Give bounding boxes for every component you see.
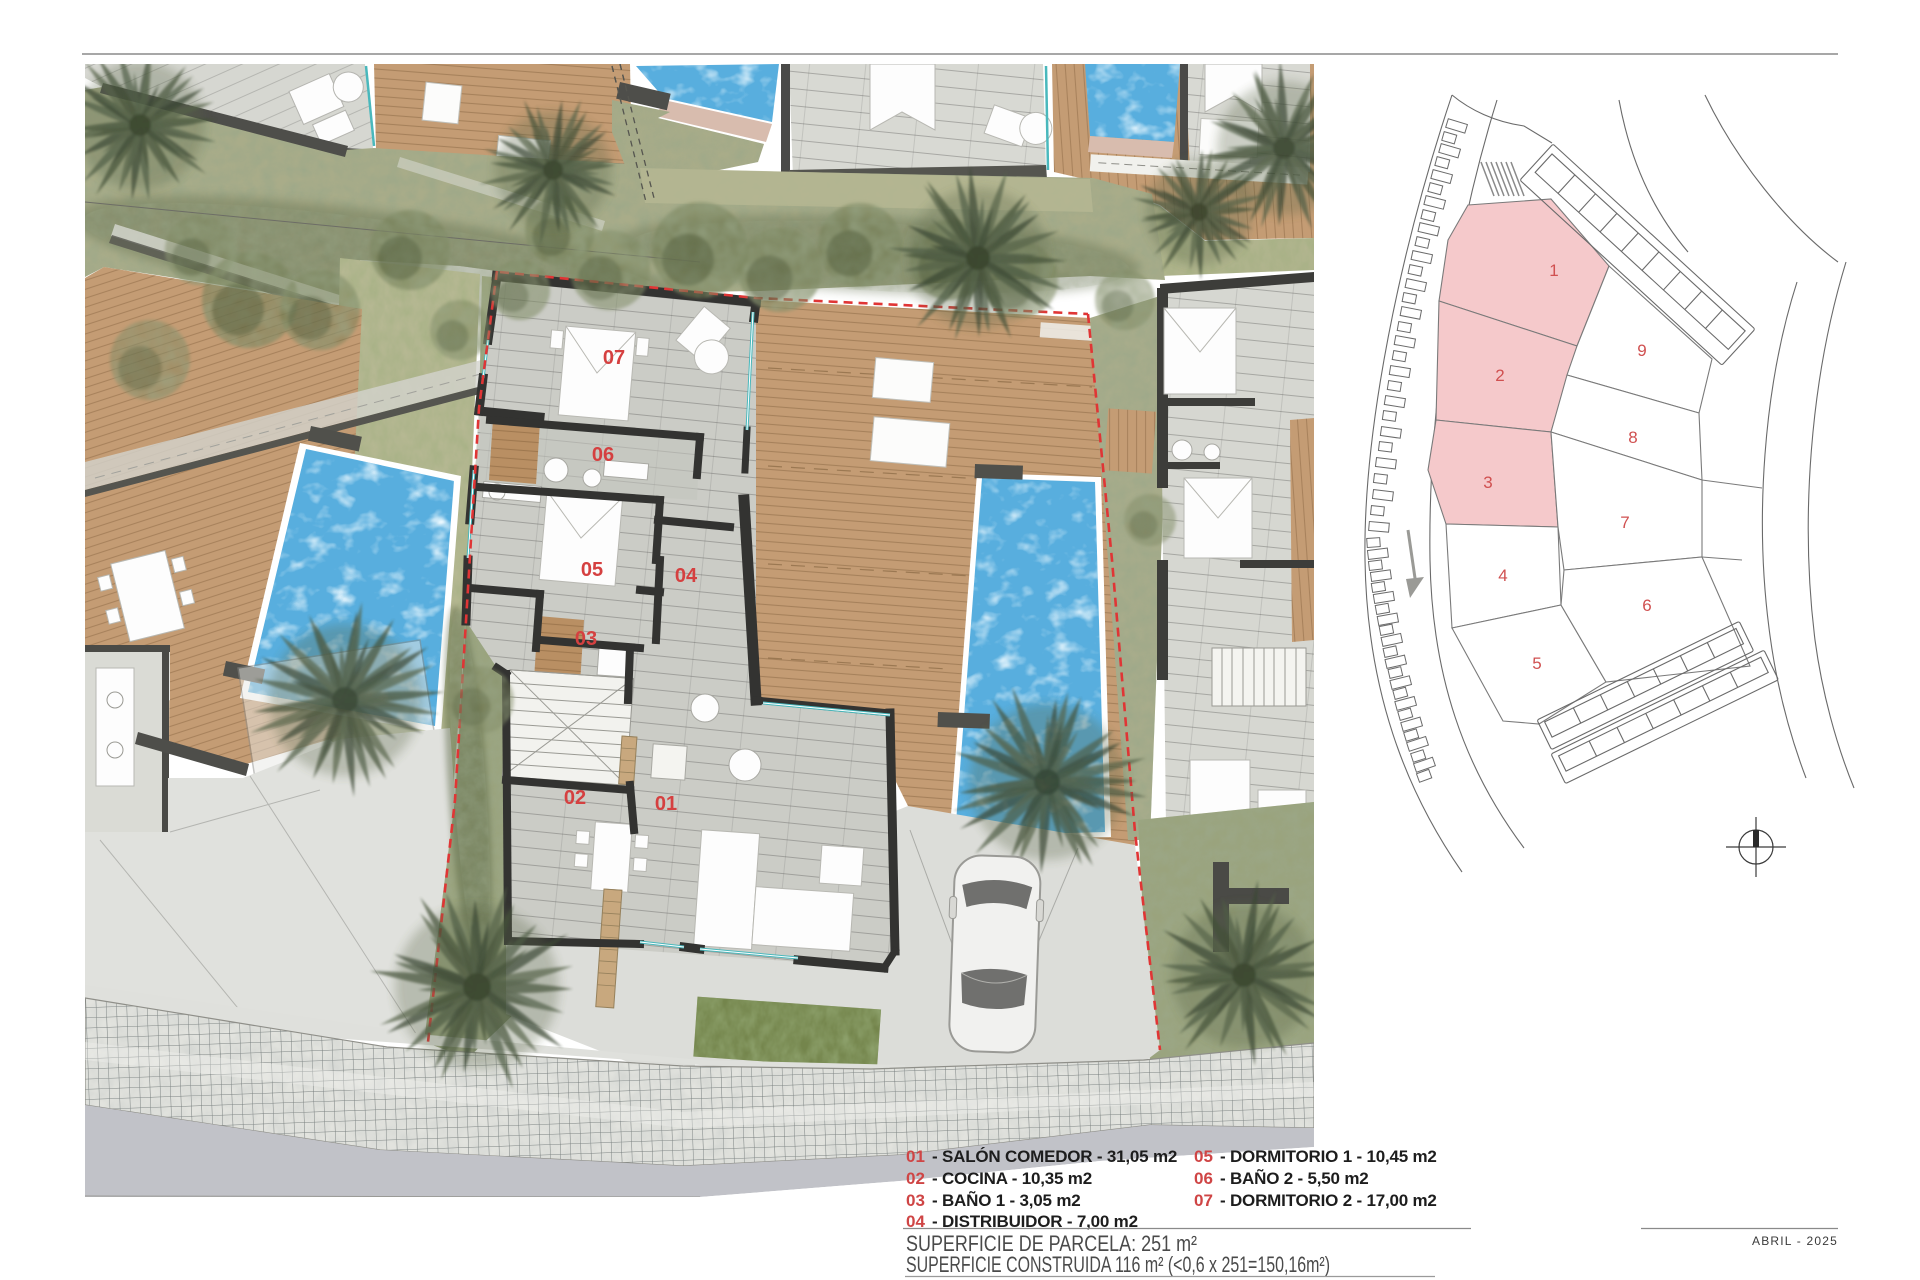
svg-text:3: 3 bbox=[1483, 473, 1492, 492]
svg-text:- COCINA - 10,35 m2: - COCINA - 10,35 m2 bbox=[932, 1169, 1092, 1188]
svg-text:05: 05 bbox=[581, 559, 603, 581]
svg-text:07: 07 bbox=[603, 347, 625, 369]
svg-text:9: 9 bbox=[1637, 341, 1646, 360]
svg-text:04: 04 bbox=[675, 565, 698, 587]
svg-text:SUPERFICIE CONSTRUIDA 116 m² (: SUPERFICIE CONSTRUIDA 116 m² (<0,6 x 251… bbox=[906, 1252, 1330, 1277]
svg-text:01: 01 bbox=[655, 793, 677, 815]
svg-text:03: 03 bbox=[575, 628, 597, 650]
svg-text:1: 1 bbox=[1549, 261, 1558, 280]
svg-text:4: 4 bbox=[1498, 566, 1507, 585]
svg-text:- DORMITORIO 2 - 17,00 m2: - DORMITORIO 2 - 17,00 m2 bbox=[1220, 1191, 1437, 1210]
svg-text:02: 02 bbox=[906, 1169, 925, 1188]
svg-text:ABRIL - 2025: ABRIL - 2025 bbox=[1752, 1234, 1838, 1248]
svg-text:7: 7 bbox=[1620, 513, 1629, 532]
svg-text:06: 06 bbox=[592, 444, 614, 466]
svg-text:- SALÓN COMEDOR - 31,05 m2: - SALÓN COMEDOR - 31,05 m2 bbox=[932, 1147, 1177, 1166]
svg-text:- BAÑO 2 - 5,50 m2: - BAÑO 2 - 5,50 m2 bbox=[1220, 1168, 1369, 1188]
svg-text:06: 06 bbox=[1194, 1169, 1213, 1188]
svg-text:2: 2 bbox=[1495, 366, 1504, 385]
svg-text:- DORMITORIO 1 - 10,45 m2: - DORMITORIO 1 - 10,45 m2 bbox=[1220, 1147, 1437, 1166]
svg-text:- BAÑO 1 - 3,05 m2: - BAÑO 1 - 3,05 m2 bbox=[932, 1190, 1081, 1210]
svg-text:02: 02 bbox=[564, 787, 586, 809]
svg-text:05: 05 bbox=[1194, 1147, 1213, 1166]
svg-text:8: 8 bbox=[1628, 428, 1637, 447]
svg-text:01: 01 bbox=[906, 1147, 925, 1166]
svg-text:5: 5 bbox=[1532, 654, 1541, 673]
svg-text:6: 6 bbox=[1642, 596, 1651, 615]
svg-text:03: 03 bbox=[906, 1191, 925, 1210]
svg-text:07: 07 bbox=[1194, 1191, 1213, 1210]
